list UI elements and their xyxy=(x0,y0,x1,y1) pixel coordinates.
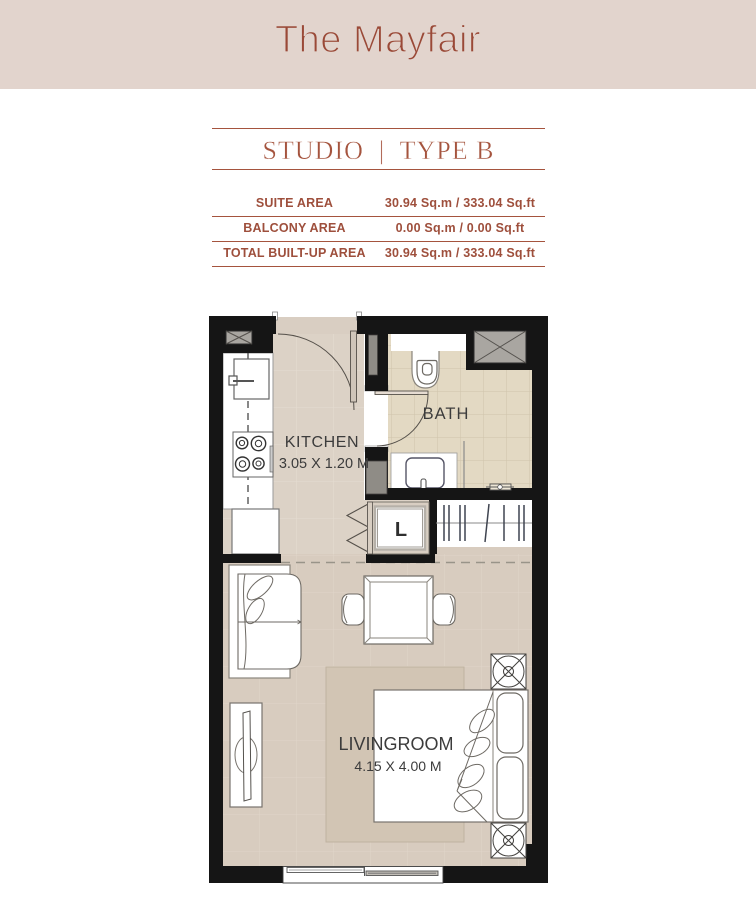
svg-text:L: L xyxy=(395,519,407,541)
svg-text:3.05 X 1.20 M: 3.05 X 1.20 M xyxy=(279,456,369,472)
svg-text:4.15 X 4.00 M: 4.15 X 4.00 M xyxy=(354,758,441,774)
svg-text:BATH: BATH xyxy=(423,405,470,423)
svg-text:KITCHEN: KITCHEN xyxy=(285,434,359,451)
svg-text:LIVINGROOM: LIVINGROOM xyxy=(338,734,453,754)
